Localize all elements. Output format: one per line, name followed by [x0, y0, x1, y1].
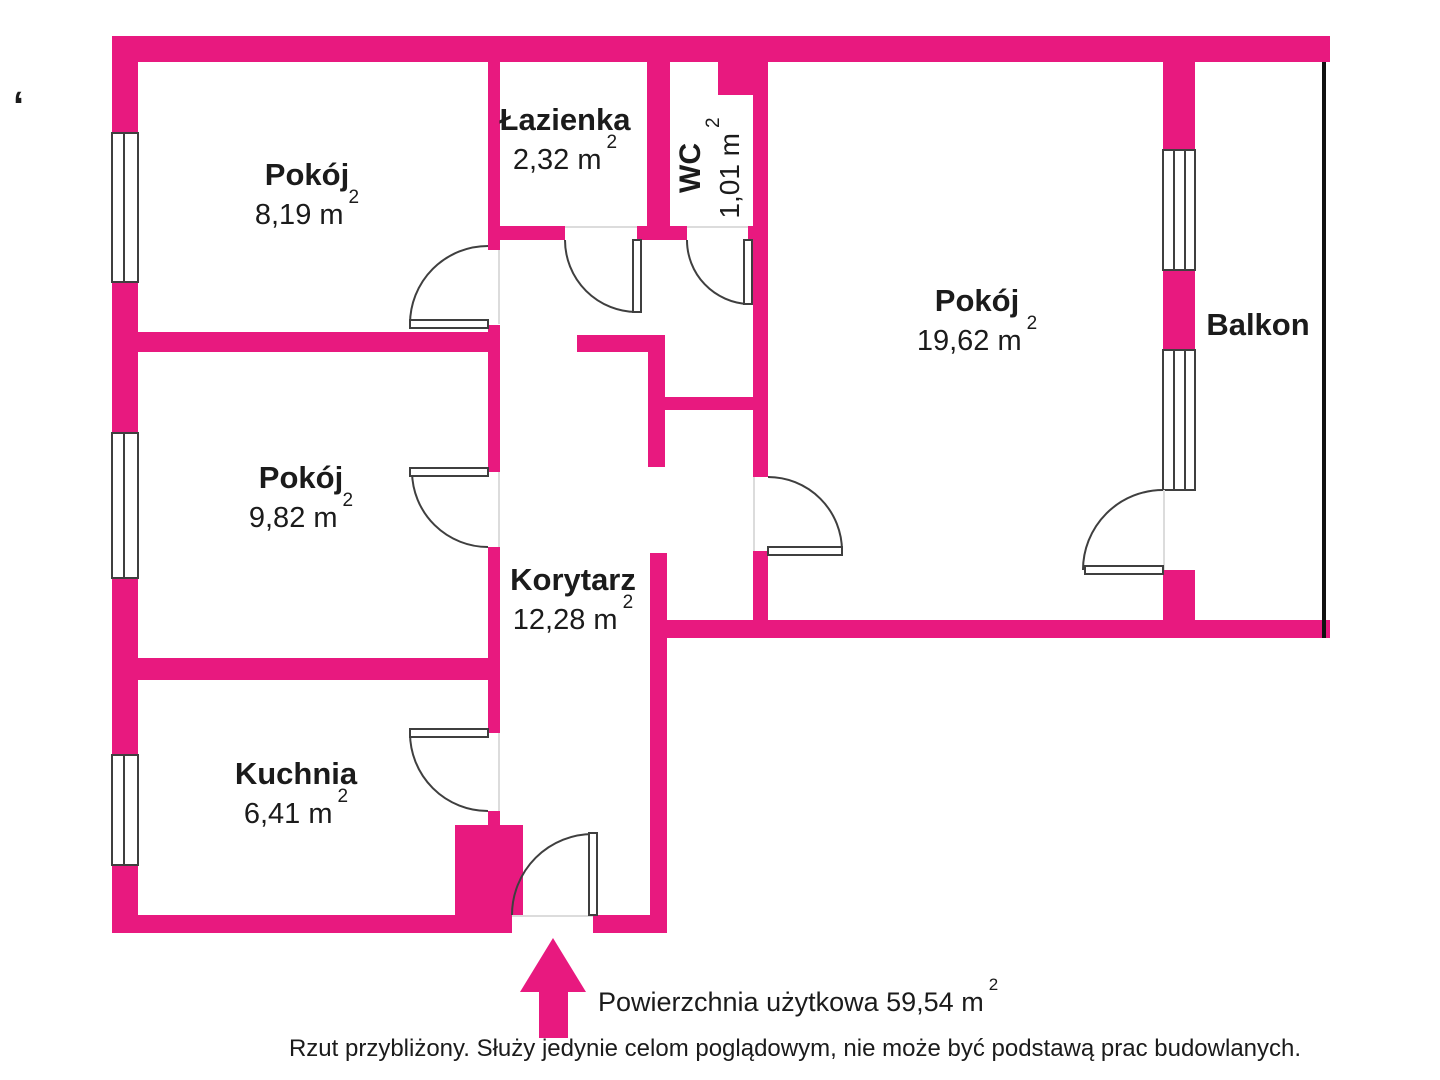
room-area: 8,19 m2 [255, 195, 359, 234]
room-area: 1,01 m2 [711, 117, 749, 218]
room-area: 9,82 m2 [249, 498, 353, 537]
room-label-wc: WC 1,01 m2 [671, 117, 749, 218]
wall-balcony-segment-2 [1163, 270, 1195, 350]
entrance-arrow-icon [520, 938, 586, 1038]
wall-top-exterior [112, 36, 1330, 62]
wall-lazienka-wc-divider [647, 62, 670, 240]
wall-wc-top-block [718, 62, 757, 95]
room-area: 2,32 m2 [500, 140, 631, 179]
door-pokoj-top [410, 246, 499, 328]
wall-pokoj-mid-right-lower [488, 547, 500, 733]
window-balcony-2 [1163, 350, 1195, 490]
window-balcony-1 [1163, 150, 1195, 270]
corner-tick-mark: ‘ [13, 86, 24, 126]
door-lazienka [565, 227, 641, 312]
wall-balcony-segment-1 [1163, 62, 1195, 150]
wall-pokoj-right-left-lower [753, 551, 768, 620]
wall-between-pokoj-top-and-mid [138, 332, 498, 352]
room-label-korytarz: Korytarz 12,28 m2 [510, 559, 636, 639]
door-entrance [512, 833, 597, 916]
wall-bottom-right-wing [667, 620, 1330, 638]
wall-corridor-connector [665, 397, 753, 410]
room-label-pokoj-top: Pokój 8,19 m2 [255, 154, 359, 234]
wall-corridor-right-lower [650, 553, 667, 933]
wall-pokoj-top-right-upper [488, 62, 500, 250]
wall-left-segment-1 [112, 36, 138, 133]
room-name: Pokój [255, 154, 359, 196]
room-name: Pokój [249, 457, 353, 499]
room-name: WC [671, 117, 711, 218]
room-area: 12,28 m2 [510, 600, 636, 639]
window-pokoj-top [112, 133, 138, 282]
window-pokoj-mid [112, 433, 138, 578]
room-label-pokoj-mid: Pokój 9,82 m2 [249, 457, 353, 537]
room-name: Pokój [917, 280, 1037, 322]
door-wc [687, 227, 752, 304]
room-area: 6,41 m2 [235, 794, 357, 833]
wall-pokoj-mid-right-upper [488, 325, 500, 472]
wall-bottom-left [112, 915, 512, 933]
balcony-edge-line [1322, 62, 1326, 638]
wall-left-segment-3 [112, 578, 138, 755]
door-pokoj-mid [410, 468, 499, 547]
room-label-balkon: Balkon [1206, 304, 1309, 346]
total-area-text: Powierzchnia użytkowa 59,54 m2 [598, 986, 998, 1018]
disclaimer-text: Rzut przybliżony. Służy jedynie celom po… [289, 1035, 1301, 1063]
window-kuchnia [112, 755, 138, 865]
door-kuchnia [410, 729, 499, 811]
wall-balcony-segment-3 [1163, 570, 1195, 620]
wall-pokoj-right-left-upper [753, 62, 768, 477]
wall-corridor-stub-vertical [648, 352, 665, 467]
room-label-lazienka: Łazienka 2,32 m2 [500, 99, 631, 179]
room-area: 19,62 m2 [917, 321, 1037, 360]
room-name: Korytarz [510, 559, 636, 601]
wall-between-pokoj-mid-and-kuchnia [138, 658, 499, 680]
room-label-pokoj-right: Pokój 19,62 m2 [917, 280, 1037, 360]
room-name: Balkon [1206, 304, 1309, 346]
wall-corridor-stub-arm [577, 335, 665, 352]
room-label-kuchnia: Kuchnia 6,41 m2 [235, 753, 357, 833]
wall-left-segment-2 [112, 282, 138, 433]
door-balcony [1083, 490, 1164, 574]
door-pokoj-right [754, 477, 842, 555]
wall-lazienka-bottom-left [499, 226, 565, 240]
floor-plan-page: ‘ Pokój 8,19 m2 Łazienka 2,32 m2 WC 1,01… [0, 0, 1440, 1080]
